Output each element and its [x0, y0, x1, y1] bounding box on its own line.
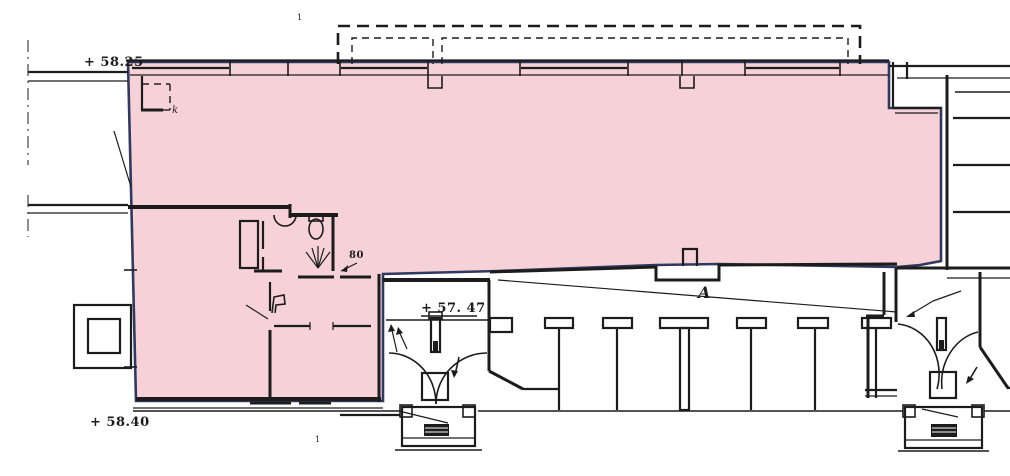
- elevation-label-top-left: + 58.25: [84, 55, 144, 70]
- floor-plan-canvas: + 58.25 + 58.40 + 57. 47 80 A k 1 1: [0, 0, 1010, 476]
- tick-mark-bottom: 1: [315, 435, 321, 444]
- highlighted-area[interactable]: [128, 62, 941, 401]
- entrance-left-steps: [395, 405, 482, 450]
- room-mark: k: [172, 105, 179, 116]
- doormat: [931, 424, 957, 437]
- dimension-label-wc: 80: [349, 250, 364, 261]
- entrance-right-steps: [898, 405, 989, 451]
- elevation-label-bottom-left: + 58.40: [90, 415, 150, 430]
- door-swing: [389, 353, 436, 404]
- right-stair-block: [947, 75, 1010, 278]
- colonnade: [490, 249, 897, 410]
- door-swing: [942, 332, 978, 389]
- entrance-right: [866, 268, 1010, 398]
- tick-mark-top: 1: [297, 13, 303, 22]
- doormat: [424, 424, 449, 436]
- door-swing: [436, 353, 487, 404]
- floor-plan-svg: + 58.25 + 58.40 + 57. 47 80 A k 1 1: [0, 0, 1010, 476]
- canopy-dashed-outline: [338, 26, 860, 64]
- elevation-label-entrance: + 57. 47: [421, 301, 486, 316]
- door-swing: [898, 324, 939, 389]
- section-letter: A: [696, 283, 711, 302]
- ground-lines: [133, 411, 1010, 415]
- light-shaft: [74, 305, 131, 368]
